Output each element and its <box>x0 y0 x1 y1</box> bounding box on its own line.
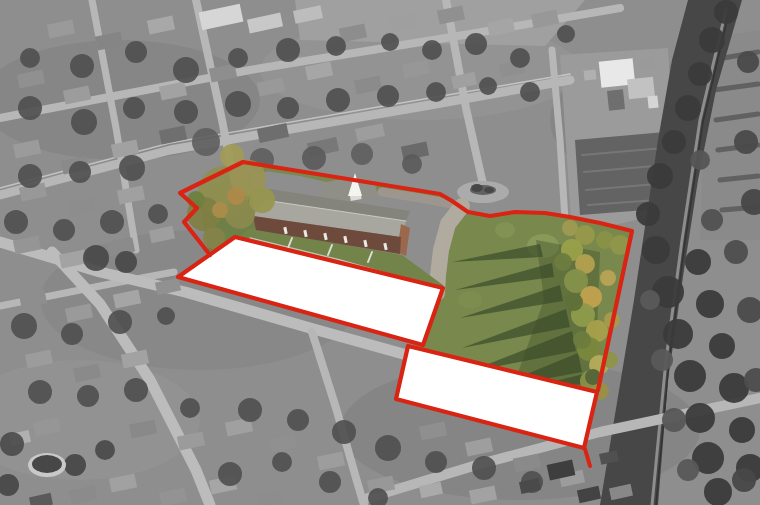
aerial-photo <box>0 0 760 505</box>
screenshot <box>0 0 760 505</box>
aerial-photo-figure <box>0 0 760 505</box>
pool <box>28 453 66 477</box>
